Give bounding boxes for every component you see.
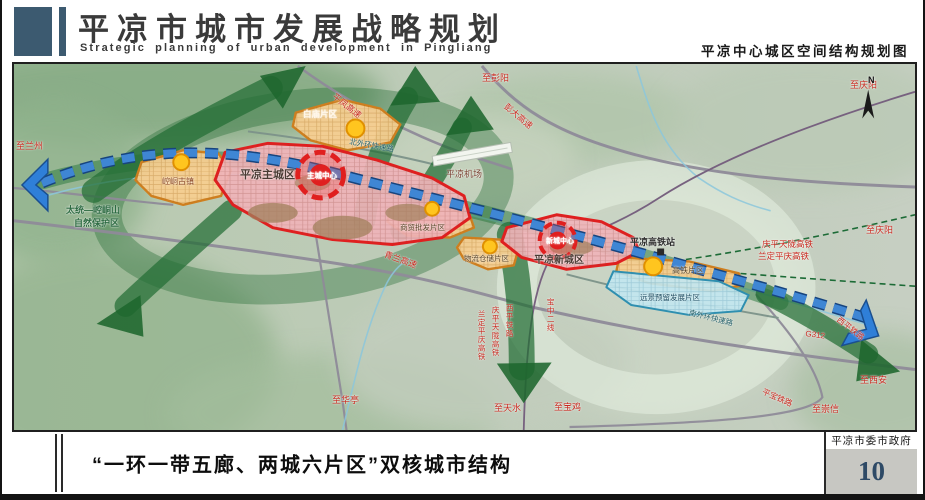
footer-rule-2 [61,434,63,492]
agency-name: 平凉市委市政府 [826,432,917,449]
header: 平凉市城市发展战略规划 Strategic planning of urban … [2,0,923,62]
structure-concept-caption: “一环一带五廊、两城六片区”双核城市结构 [92,449,512,478]
footer-info-box: 平凉市委市政府 10 [824,432,917,494]
logo-square [14,7,52,56]
new-core-target [540,223,576,259]
page-number: 10 [826,449,917,494]
page: 平凉市城市发展战略规划 Strategic planning of urban … [0,0,925,500]
map-sheet-title: 平凉中心城区空间结构规划图 [701,40,909,60]
planning-map: 至兰州白庙片区平凤高速至彭阳彭大高速至庆阳北外环快速路平凉主城区主城中心太统—崆… [12,62,917,432]
logo-bar [59,7,66,56]
page-subtitle-en: Strategic planning of urban development … [80,42,493,54]
footer: “一环一带五廊、两城六片区”双核城市结构 平凉市委市政府 10 [12,432,917,494]
hsr-station-marker [657,248,664,255]
map-canvas [14,64,915,430]
main-core-target [298,152,344,198]
footer-rule-1 [55,434,57,492]
